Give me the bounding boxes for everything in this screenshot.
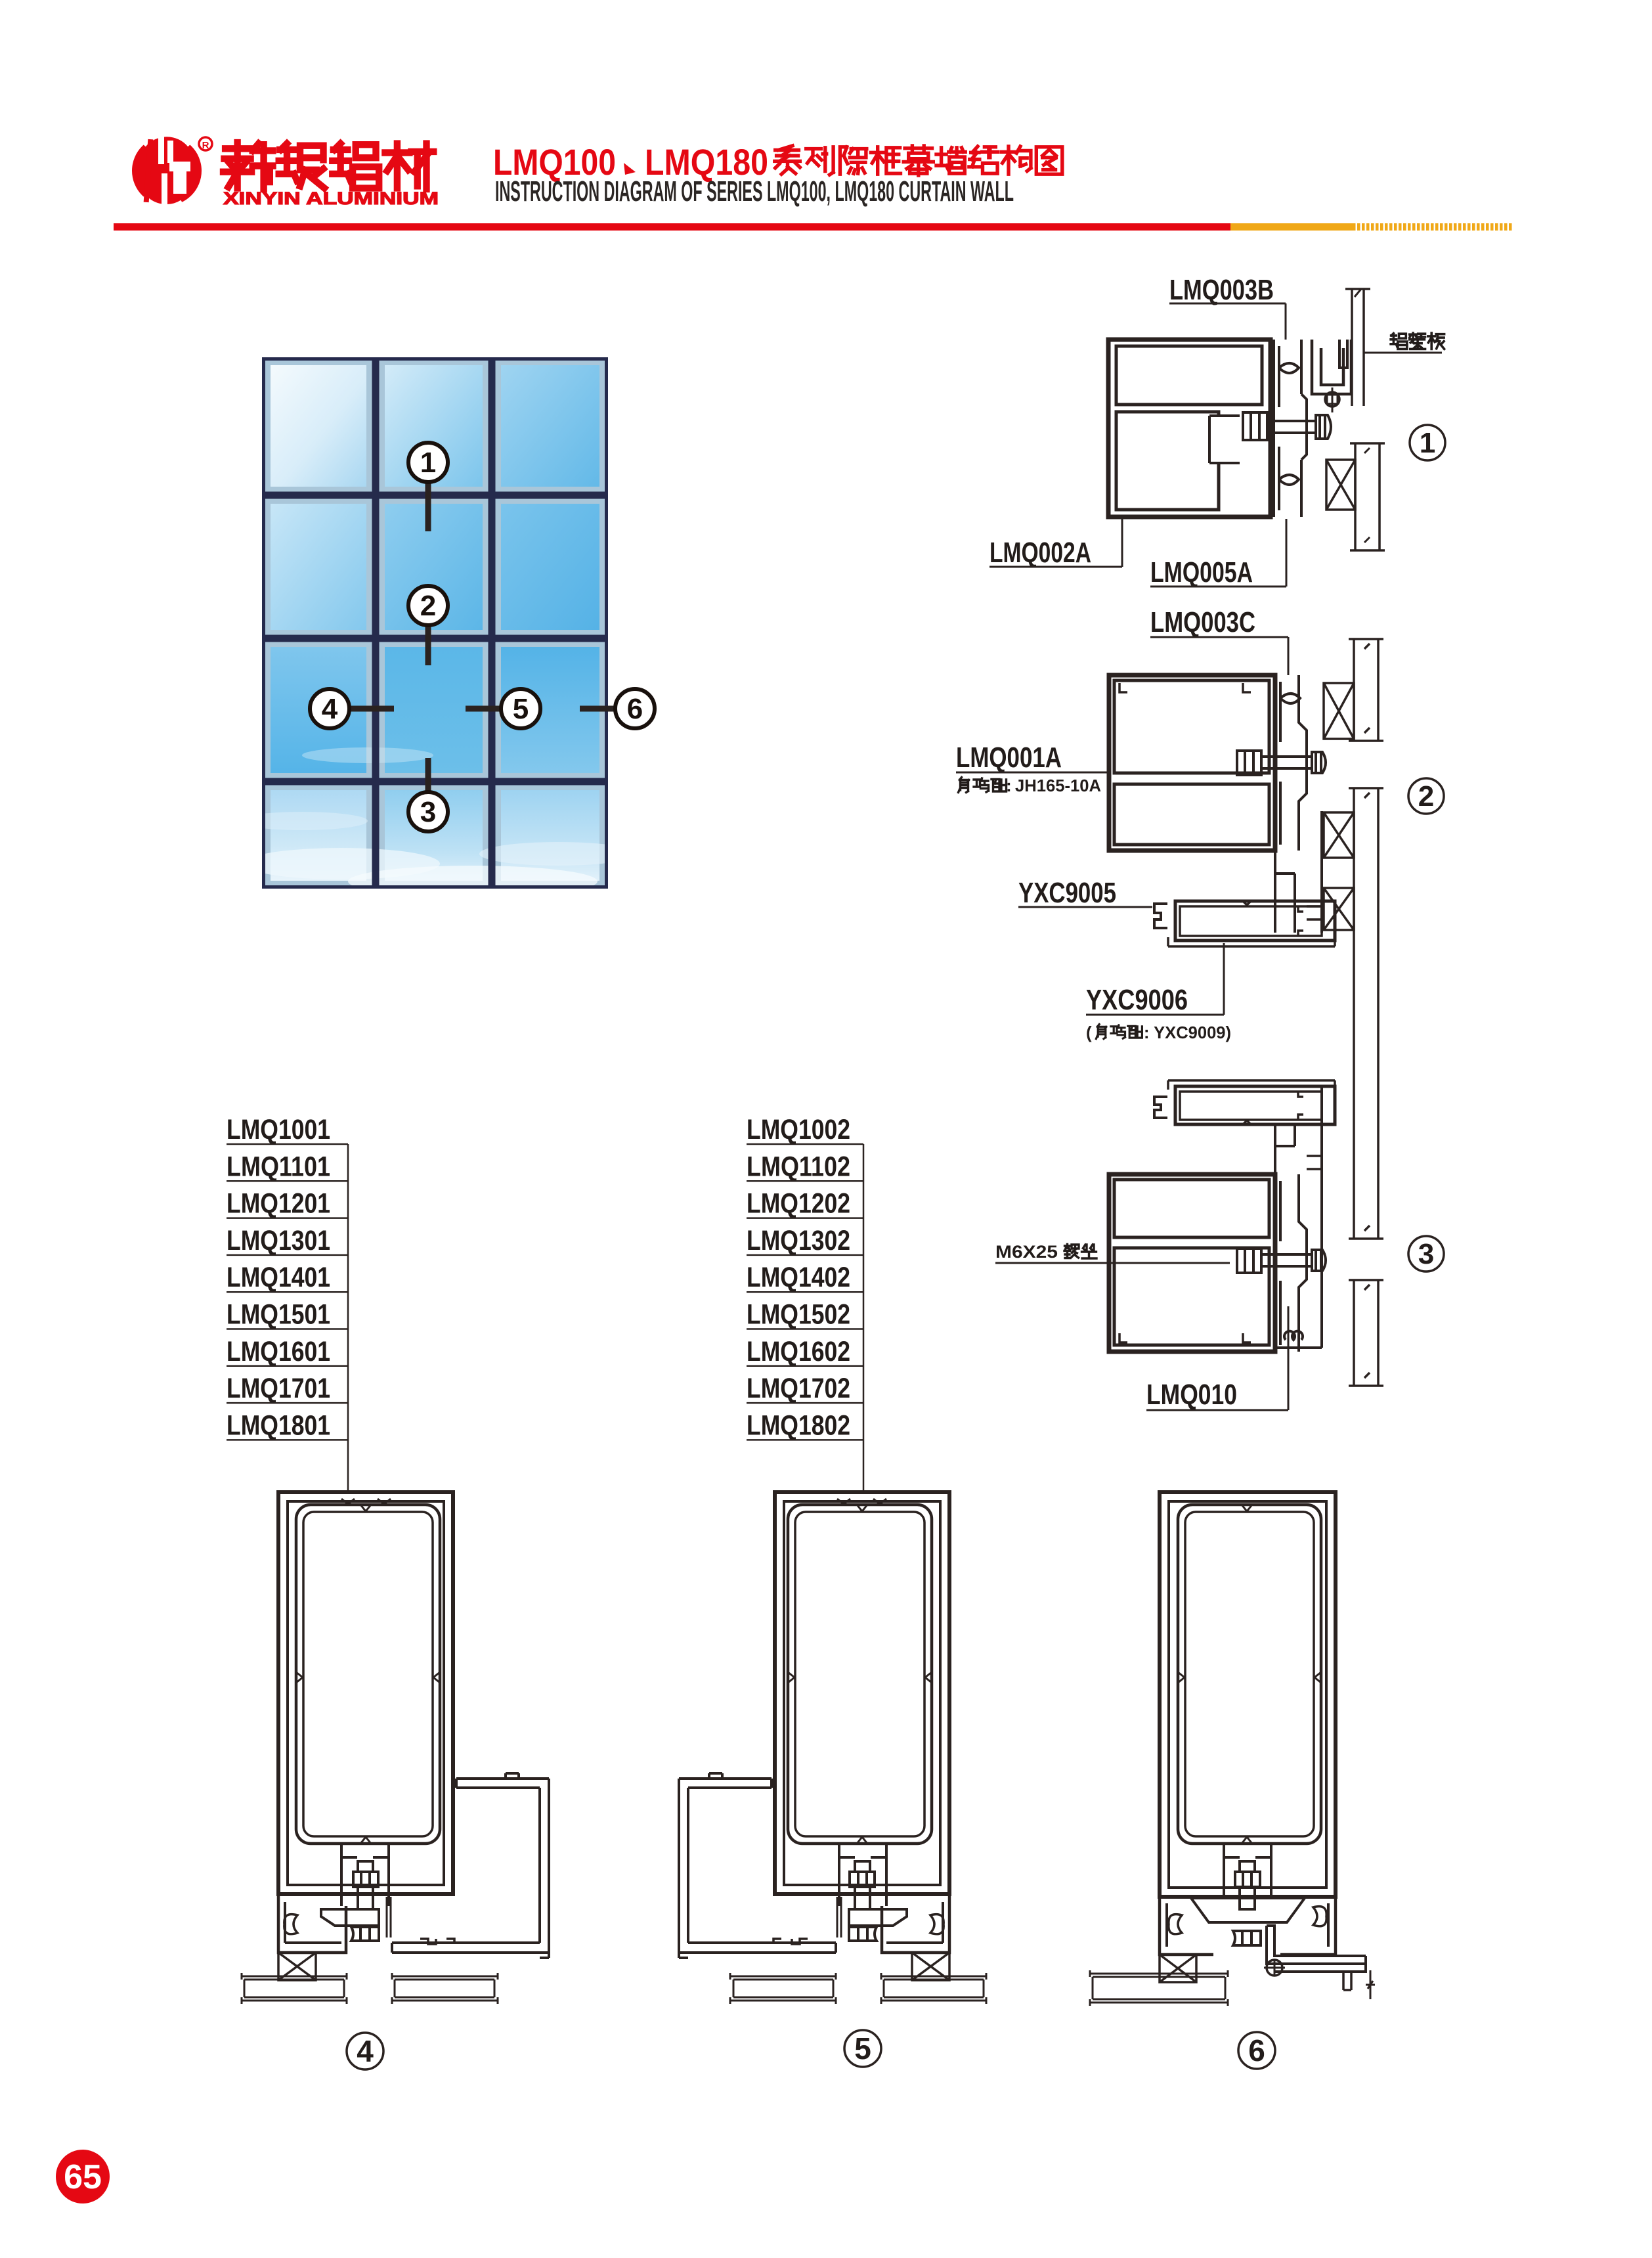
svg-text:4: 4 bbox=[357, 2034, 374, 2068]
svg-text:LMQ1402: LMQ1402 bbox=[747, 1262, 850, 1293]
svg-text:6: 6 bbox=[627, 693, 643, 725]
svg-text:LMQ005A: LMQ005A bbox=[1150, 556, 1253, 588]
svg-text:LMQ1802: LMQ1802 bbox=[747, 1409, 850, 1441]
svg-text:LMQ1301: LMQ1301 bbox=[227, 1225, 330, 1256]
svg-text:3: 3 bbox=[1418, 1238, 1434, 1270]
svg-text:LMQ1601: LMQ1601 bbox=[227, 1336, 330, 1367]
svg-text:LMQ1002: LMQ1002 bbox=[747, 1114, 850, 1145]
svg-text:LMQ1102: LMQ1102 bbox=[747, 1151, 850, 1182]
svg-text:2: 2 bbox=[420, 590, 436, 622]
svg-text:LMQ010: LMQ010 bbox=[1146, 1379, 1237, 1411]
svg-text:LMQ003B: LMQ003B bbox=[1169, 274, 1274, 306]
svg-text:LMQ1202: LMQ1202 bbox=[747, 1188, 850, 1220]
svg-text:JH165-10A: JH165-10A bbox=[1015, 776, 1101, 795]
svg-text:LMQ003C: LMQ003C bbox=[1150, 606, 1255, 638]
svg-text:LMQ1401: LMQ1401 bbox=[227, 1262, 330, 1293]
svg-text:LMQ002A: LMQ002A bbox=[989, 537, 1091, 569]
svg-text:LMQ1701: LMQ1701 bbox=[227, 1373, 330, 1404]
svg-text:: YXC9009): : YXC9009) bbox=[1144, 1023, 1231, 1042]
svg-text:1: 1 bbox=[420, 447, 436, 479]
svg-text:(: ( bbox=[1086, 1023, 1092, 1042]
svg-text:LMQ1801: LMQ1801 bbox=[227, 1409, 330, 1441]
svg-text:LMQ1001: LMQ1001 bbox=[227, 1114, 330, 1145]
svg-text:LMQ1502: LMQ1502 bbox=[747, 1299, 850, 1331]
svg-text:65: 65 bbox=[64, 2158, 102, 2196]
svg-text:XINYIN ALUMINIUM: XINYIN ALUMINIUM bbox=[223, 188, 439, 208]
svg-text:2: 2 bbox=[1418, 780, 1434, 812]
svg-text:LMQ1702: LMQ1702 bbox=[747, 1373, 850, 1404]
svg-text:LMQ1101: LMQ1101 bbox=[227, 1151, 330, 1182]
svg-text:LMQ1602: LMQ1602 bbox=[747, 1336, 850, 1367]
svg-text:LMQ1302: LMQ1302 bbox=[747, 1225, 850, 1256]
svg-text:YXC9005: YXC9005 bbox=[1018, 877, 1116, 909]
svg-text:6: 6 bbox=[1248, 2033, 1265, 2068]
svg-text:4: 4 bbox=[322, 693, 338, 725]
svg-text:R: R bbox=[202, 140, 209, 151]
svg-text:3: 3 bbox=[420, 796, 436, 828]
svg-text:YXC9006: YXC9006 bbox=[1086, 984, 1188, 1016]
svg-text:5: 5 bbox=[854, 2031, 871, 2066]
svg-text::: : bbox=[1006, 776, 1012, 795]
svg-text:5: 5 bbox=[513, 693, 529, 725]
svg-text:LMQ1201: LMQ1201 bbox=[227, 1188, 330, 1220]
svg-text:M6X25: M6X25 bbox=[995, 1242, 1058, 1262]
svg-text:INSTRUCTION DIAGRAM OF SERIES: INSTRUCTION DIAGRAM OF SERIES LMQ100, LM… bbox=[495, 175, 1014, 208]
svg-text:LMQ001A: LMQ001A bbox=[956, 742, 1062, 774]
svg-text:1: 1 bbox=[1420, 427, 1435, 459]
svg-text:LMQ1501: LMQ1501 bbox=[227, 1299, 330, 1331]
